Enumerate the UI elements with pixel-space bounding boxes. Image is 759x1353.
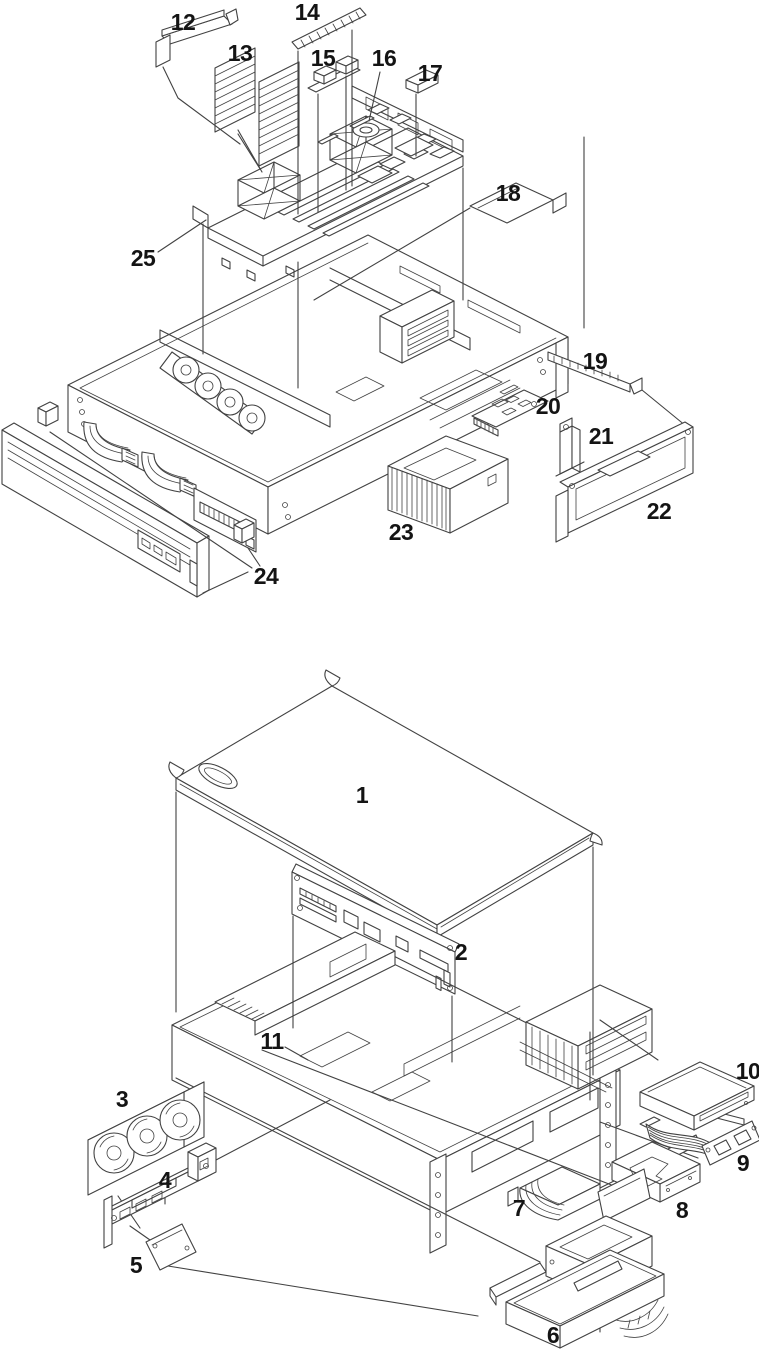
slide-rail-icon [548,352,686,426]
part-number-5: 5 [130,1252,143,1278]
part-number-6: 6 [547,1322,559,1348]
part-number-13: 13 [228,40,253,66]
exploded-parts-diagram: 1213141516171819202122232425 [0,0,759,1353]
exploded-parts-diagram-page: 1213141516171819202122232425 [0,0,759,1353]
hard-drive-tray-icon [490,1216,668,1348]
part-number-1: 1 [356,782,369,808]
figure-server-internals: 1213141516171819202122232425 [2,0,693,597]
part-number-15: 15 [311,45,336,71]
part-number-10: 10 [736,1058,759,1084]
figure-chassis-cover-drives: 1234567891011 [88,670,759,1348]
part-number-8: 8 [676,1197,689,1223]
part-number-21: 21 [589,423,614,449]
part-number-2: 2 [455,939,467,965]
part-number-12: 12 [171,9,196,35]
part-number-7: 7 [513,1195,525,1221]
part-number-3: 3 [116,1086,128,1112]
part-number-9: 9 [737,1150,749,1176]
heatsink-icon [215,48,299,172]
part-number-25: 25 [131,245,156,271]
part-number-16: 16 [372,45,397,71]
part-number-24: 24 [254,563,279,589]
part-number-23: 23 [389,519,414,545]
part-number-14: 14 [295,0,320,25]
part-number-18: 18 [496,180,521,206]
part-number-4: 4 [159,1167,172,1193]
part-number-17: 17 [418,60,443,86]
part-number-19: 19 [583,348,608,374]
support-bracket-icon [556,418,584,476]
cover-plate-icon [146,1224,196,1270]
part-number-11: 11 [260,1028,284,1054]
part-number-20: 20 [536,393,561,419]
top-cover-icon [169,670,602,937]
part-number-22: 22 [647,498,672,524]
